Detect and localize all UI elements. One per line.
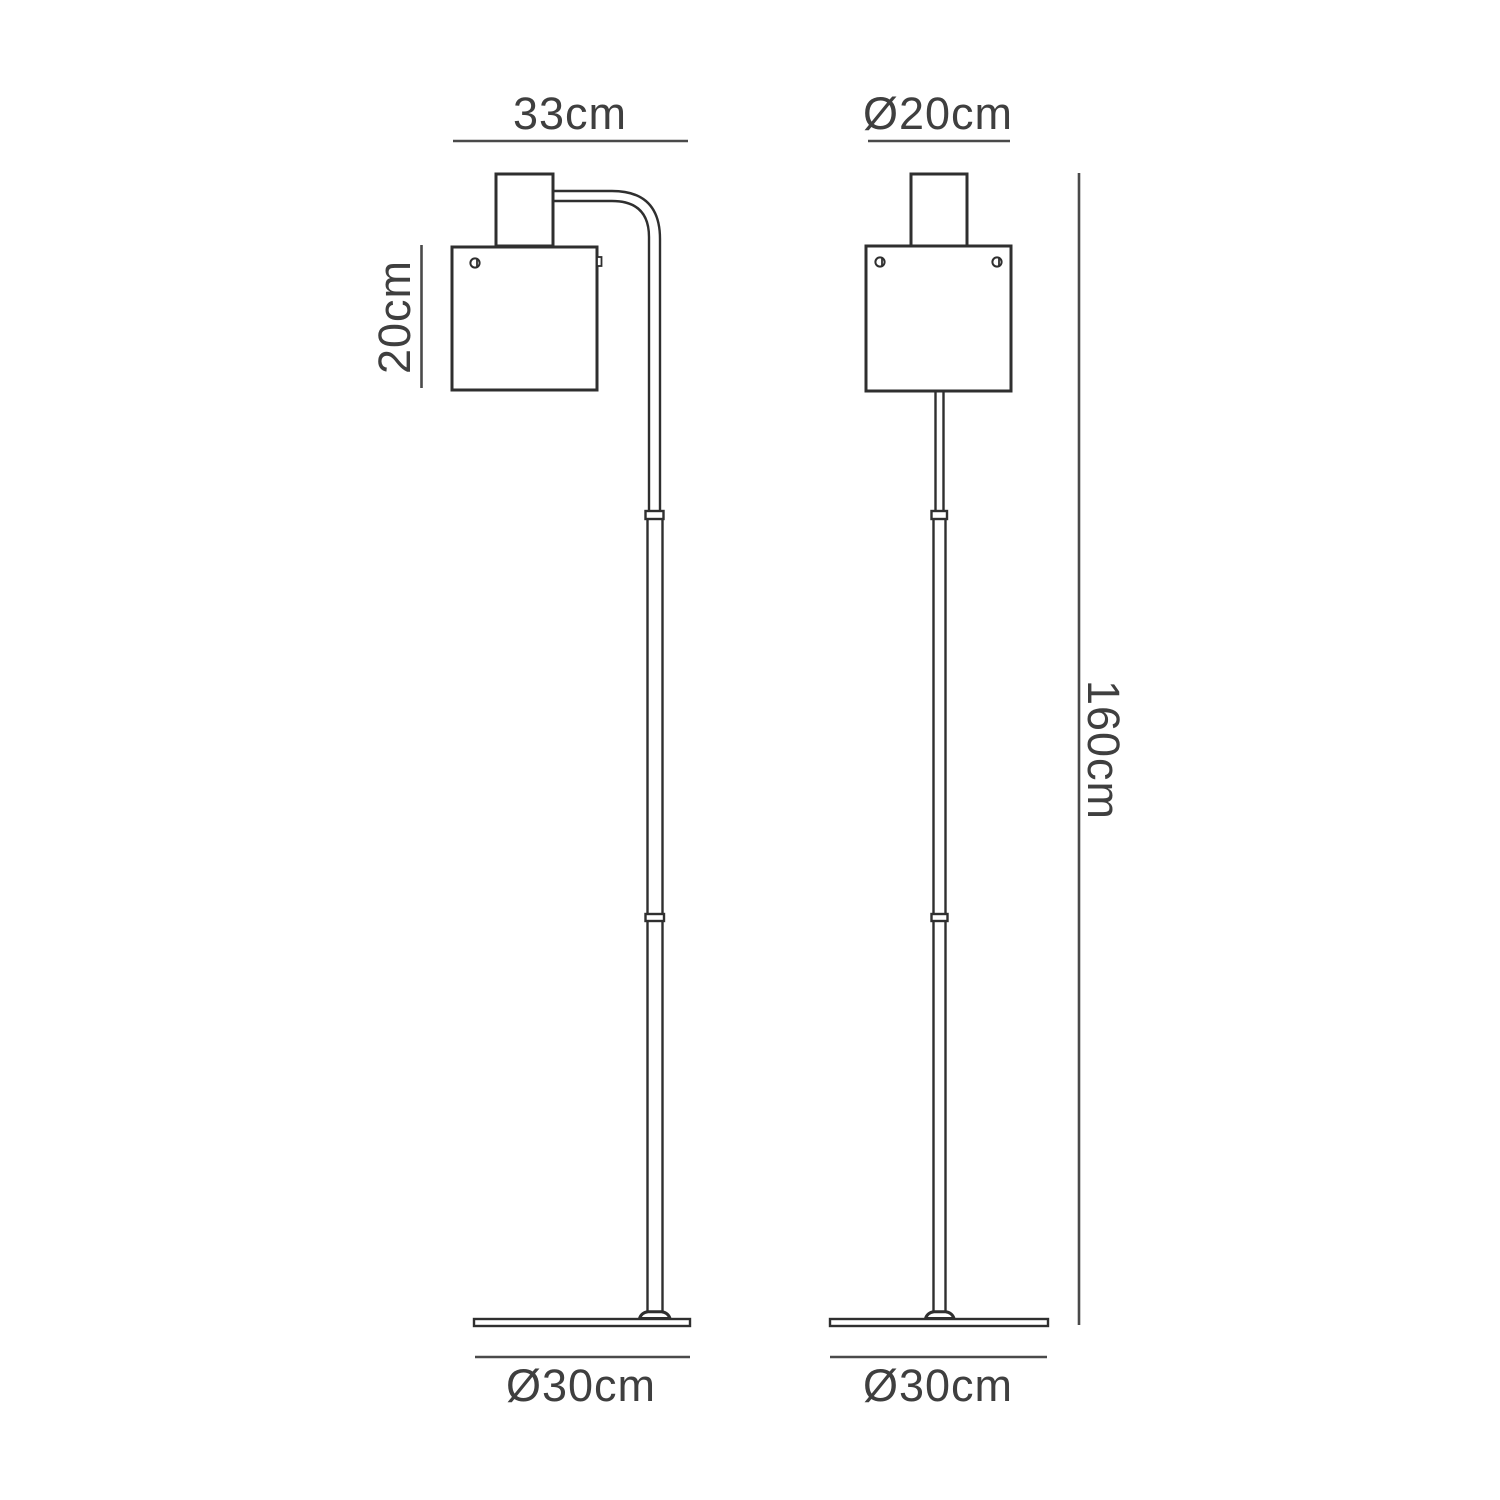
side-base-plate [830, 1319, 1048, 1326]
side-shade-screw-left-icon [875, 257, 884, 266]
side-pole-lower-joint [932, 914, 948, 921]
front-base-plate [474, 1319, 690, 1326]
side-shade-dimension-label: Ø20cm [863, 88, 1013, 139]
front-shade-screw-edge-icon [597, 257, 602, 266]
side-pole-foot-flare [926, 1312, 955, 1319]
front-width-dimension-label: 33cm [513, 88, 627, 139]
side-shade-screw-right-icon [992, 257, 1001, 266]
front-pole-lower-joint [646, 914, 665, 921]
dimension-drawing-canvas: 33cm 20cm [0, 0, 1500, 1500]
side-lamp-holder-cylinder [911, 174, 967, 246]
front-pole-upper-joint [646, 511, 664, 519]
side-lamp-shade [866, 246, 1011, 391]
front-shade-screw-icon [470, 258, 479, 267]
front-lamp-holder-cylinder [496, 174, 553, 246]
side-view: Ø20cm [830, 88, 1129, 1411]
side-total-height-dimension-label: 160cm [1078, 680, 1129, 820]
side-base-dimension-label: Ø30cm [863, 1360, 1013, 1411]
side-pole-upper-joint [932, 511, 948, 519]
floor-lamp-dimension-drawing: 33cm 20cm [0, 0, 1500, 1500]
front-shade-height-dimension-label: 20cm [369, 260, 420, 374]
front-base-dimension-label: Ø30cm [506, 1360, 656, 1411]
front-view: 33cm 20cm [369, 88, 690, 1411]
front-pole-foot-flare [640, 1312, 671, 1319]
